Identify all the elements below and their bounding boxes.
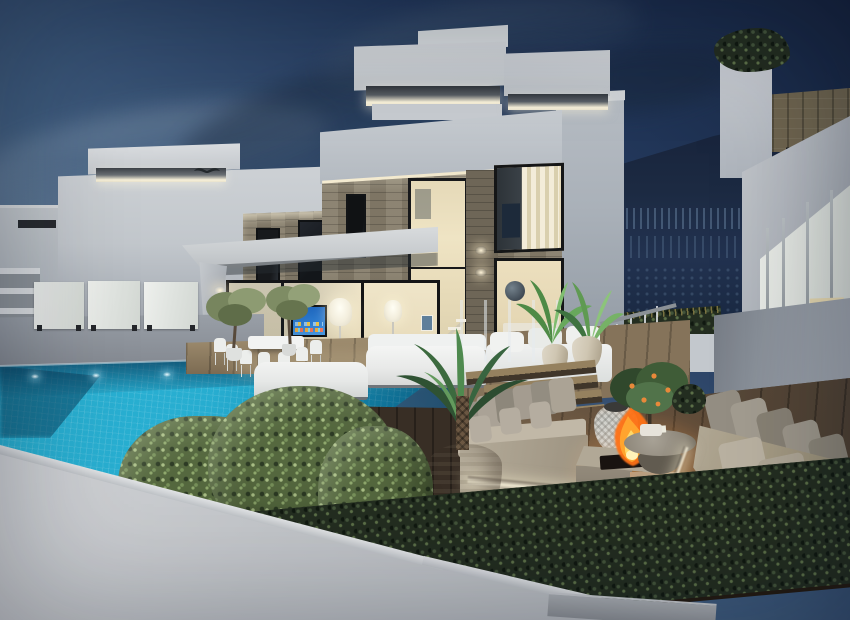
olive-tree-foliage (218, 304, 252, 326)
panel-clip (76, 325, 81, 331)
dining-chair (240, 350, 254, 378)
floor-lamp (328, 298, 352, 326)
pool-light (31, 374, 39, 379)
frosted-glass-panel (144, 282, 198, 329)
glass-reflection (502, 203, 520, 238)
roof-led-strip (366, 86, 500, 106)
panel-clip (132, 325, 137, 331)
roof-led-strip (508, 94, 608, 110)
curtained-lit-window (494, 163, 564, 253)
palm-trunk (456, 396, 469, 450)
scene (0, 0, 850, 620)
roof-box-front (354, 41, 506, 90)
pool-light (92, 373, 100, 378)
panel-clip (37, 325, 42, 331)
olive-tree-foliage (276, 300, 308, 320)
curtains (522, 166, 559, 249)
small-shrub (672, 384, 706, 414)
olive-tree-pot (282, 344, 296, 356)
frosted-glass-panel (88, 281, 140, 329)
panel-clip (147, 325, 152, 331)
panel-clip (91, 325, 96, 331)
window-mullion (411, 267, 465, 269)
rooftop-plant (714, 28, 790, 72)
right-villa-pillar (720, 58, 772, 178)
wall-sconce-light (475, 246, 487, 255)
pool-light (163, 372, 171, 377)
wall-sconce-light (475, 268, 487, 277)
frosted-glass-panel (34, 282, 84, 329)
bird-icon (193, 164, 221, 177)
glass-reflection (415, 189, 431, 219)
window-slit (18, 220, 56, 228)
olive-tree-pot (226, 348, 242, 361)
roof-slab-right (504, 50, 610, 96)
panel-clip (190, 325, 195, 331)
